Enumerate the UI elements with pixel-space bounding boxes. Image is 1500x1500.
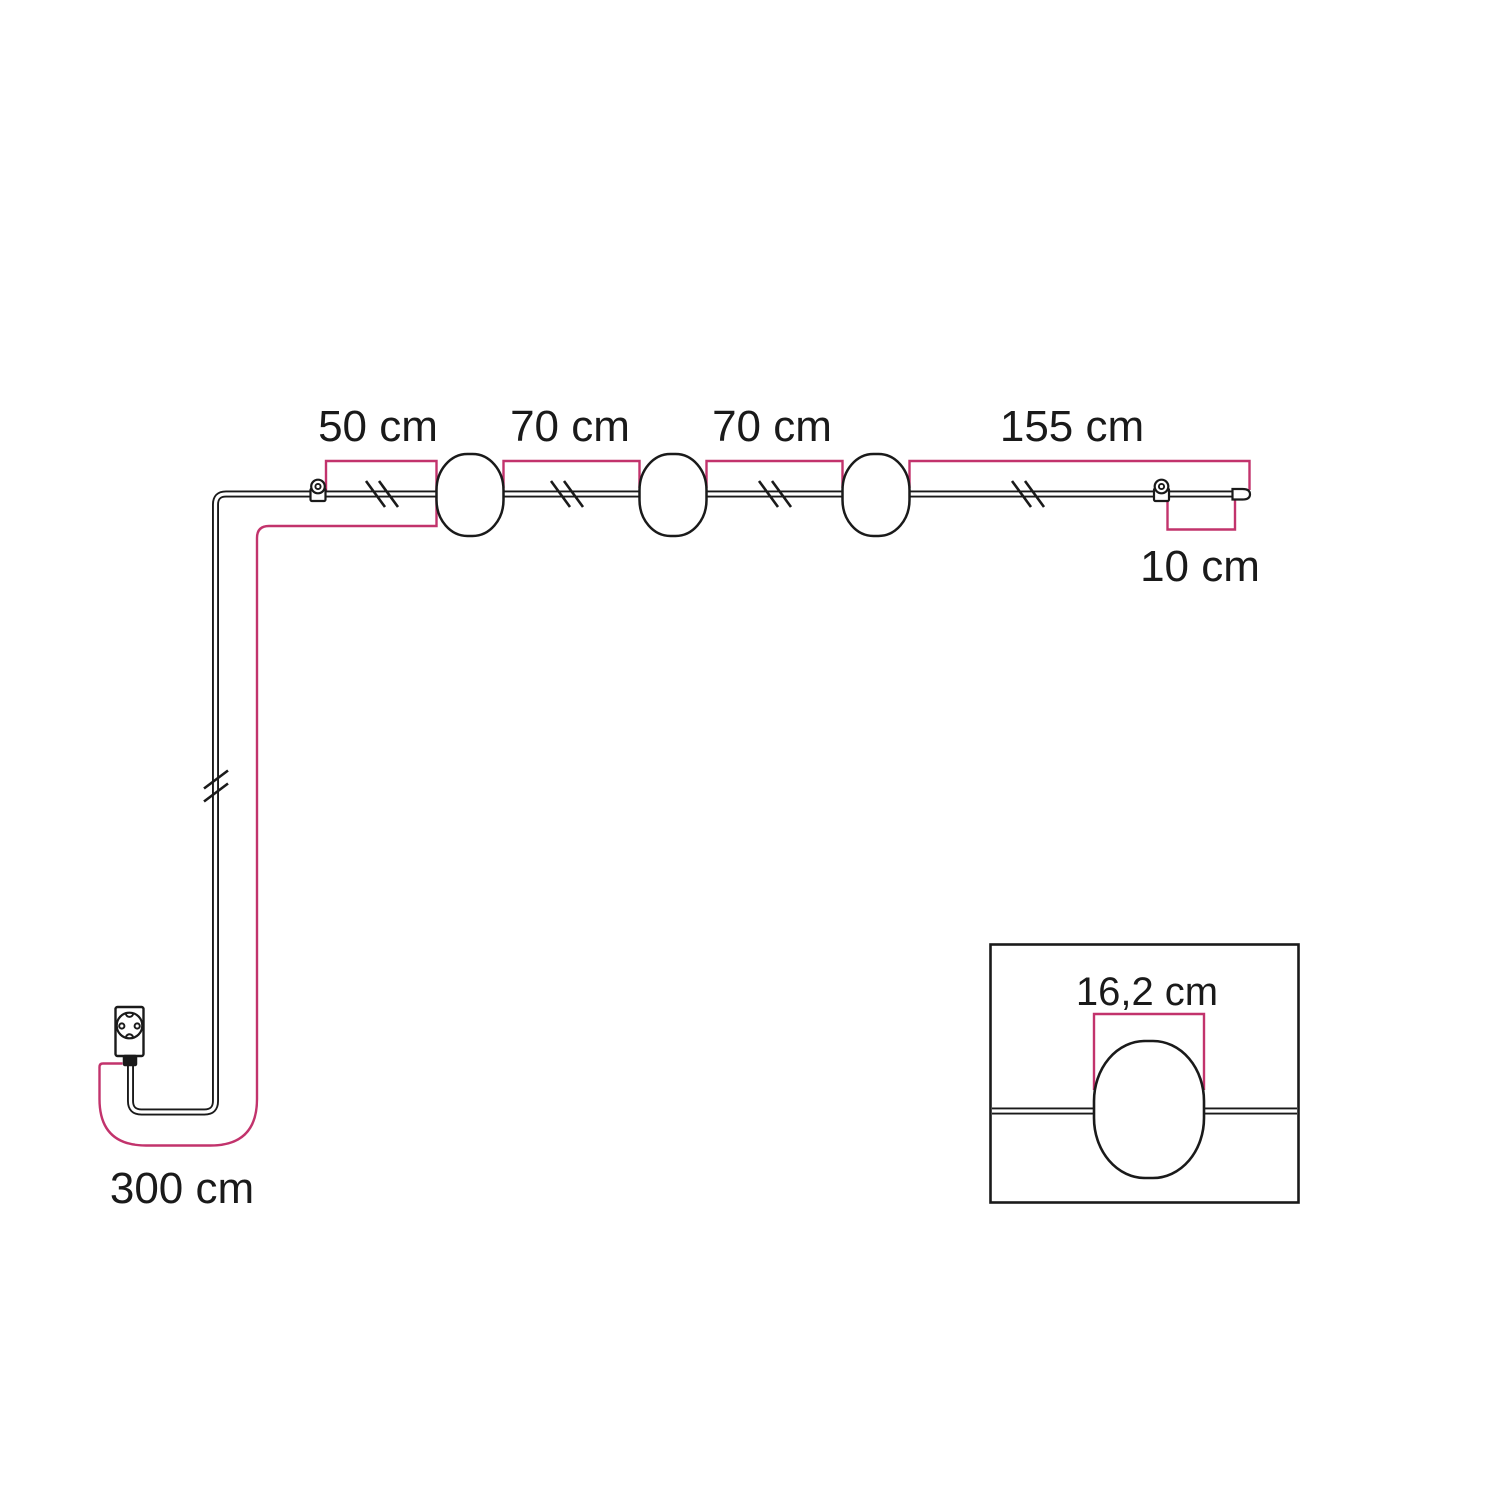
label-70cm-1: 70 cm xyxy=(510,402,630,451)
dimension-10cm-bracket xyxy=(1168,498,1236,530)
dimension-lines xyxy=(100,461,1250,1146)
wall-hook-2 xyxy=(1154,480,1169,501)
dimension-155cm-bracket xyxy=(910,461,1250,490)
dimension-50cm-300cm-path xyxy=(100,461,437,1146)
wall-hook-1 xyxy=(311,480,326,501)
label-70cm-2: 70 cm xyxy=(712,402,832,451)
label-10cm: 10 cm xyxy=(1140,542,1260,591)
label-50cm: 50 cm xyxy=(318,402,438,451)
wall-hook-2-ring xyxy=(1155,480,1169,494)
label-155cm: 155 cm xyxy=(1000,402,1144,451)
string-light-dimension-diagram: 50 cm 70 cm 70 cm 155 cm 10 cm 300 cm 16… xyxy=(0,0,1500,1500)
wall-hook-1-ring xyxy=(311,480,325,494)
lampshade-3 xyxy=(843,454,910,536)
main-cable-outer xyxy=(131,494,1241,1112)
main-cable-core xyxy=(131,494,1241,1112)
power-plug xyxy=(116,1007,144,1066)
plug-cable-connector xyxy=(124,1056,137,1066)
diagram-canvas: 50 cm 70 cm 70 cm 155 cm 10 cm 300 cm 16… xyxy=(0,0,1500,1500)
inset-lampshade xyxy=(1094,1041,1204,1178)
lampshade-1 xyxy=(437,454,504,536)
lampshade-2 xyxy=(640,454,707,536)
cable-and-fixtures xyxy=(116,454,1299,1203)
cable-end-cap xyxy=(1233,489,1251,500)
cable-break-marks xyxy=(204,481,1044,802)
label-300cm: 300 cm xyxy=(110,1164,254,1213)
dimension-70cm-bracket-1 xyxy=(504,461,640,488)
label-inset-width: 16,2 cm xyxy=(1076,970,1218,1014)
main-cable xyxy=(131,494,1241,1112)
